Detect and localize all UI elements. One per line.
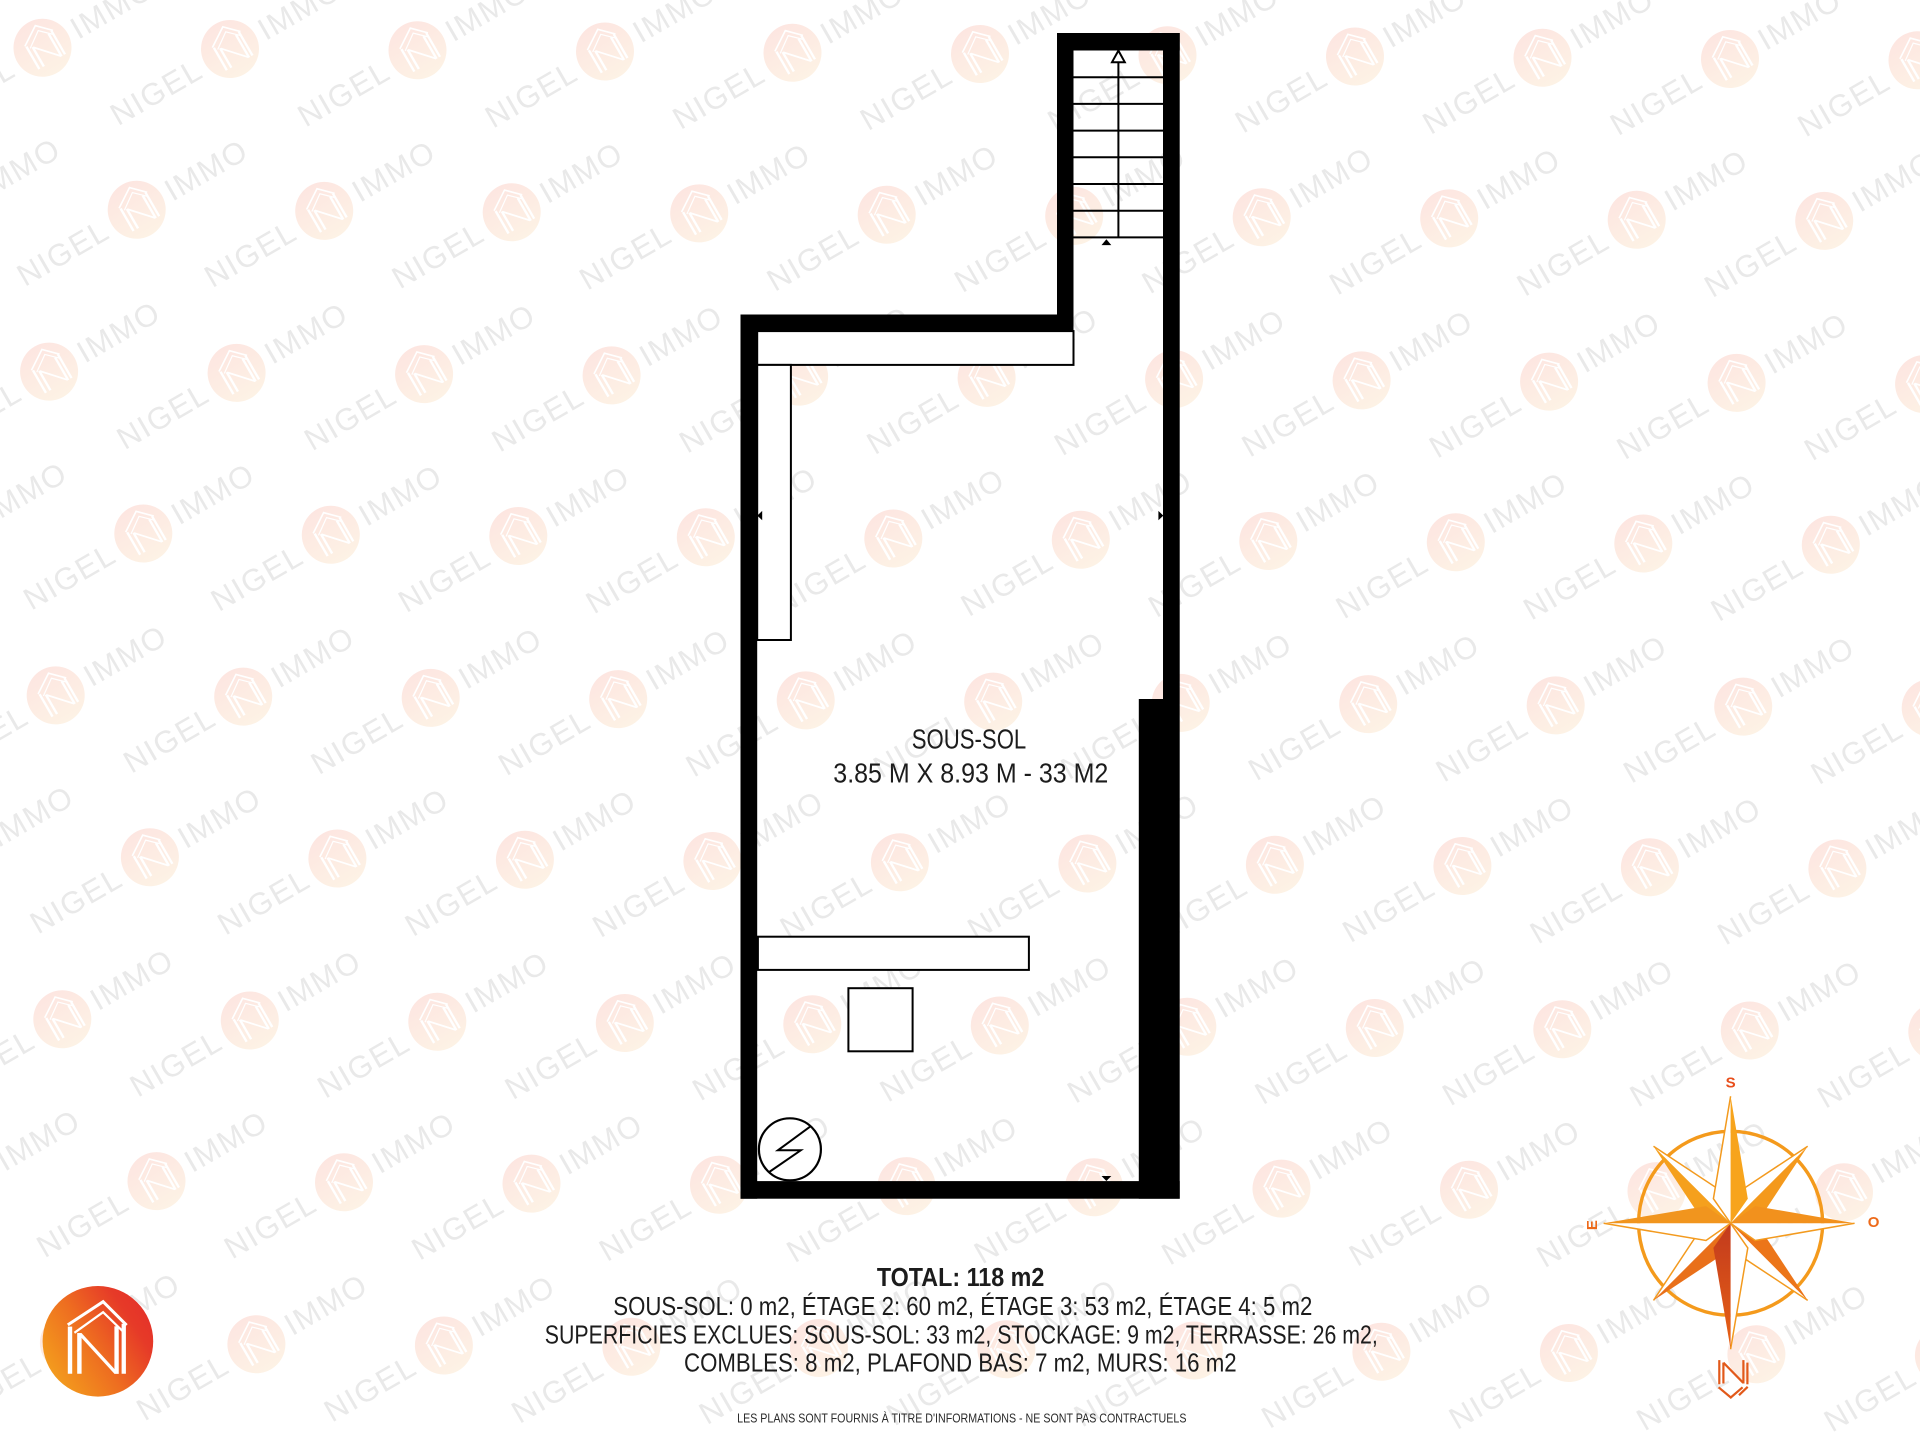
svg-text:SOUS-SOL: 0 m2, ÉTAGE 2: 60 m2: SOUS-SOL: 0 m2, ÉTAGE 2: 60 m2, ÉTAGE 3:…: [613, 1292, 1312, 1321]
svg-text:E: E: [1584, 1220, 1601, 1230]
svg-text:TOTAL: 118 m2: TOTAL: 118 m2: [877, 1264, 1045, 1292]
svg-text:COMBLES: 8 m2, PLAFOND BAS: 7: COMBLES: 8 m2, PLAFOND BAS: 7 m2, MURS: …: [684, 1349, 1237, 1377]
svg-text:O: O: [1868, 1214, 1880, 1231]
svg-text:3.85 M X 8.93 M - 33 M2: 3.85 M X 8.93 M - 33 M2: [833, 758, 1108, 789]
svg-text:SOUS-SOL: SOUS-SOL: [912, 724, 1027, 755]
svg-text:LES PLANS SONT FOURNIS À TITRE: LES PLANS SONT FOURNIS À TITRE D'INFORMA…: [737, 1411, 1186, 1426]
svg-text:SUPERFICIES EXCLUES: SOUS-SOL:: SUPERFICIES EXCLUES: SOUS-SOL: 33 m2, ST…: [545, 1321, 1378, 1349]
svg-text:S: S: [1726, 1075, 1736, 1092]
